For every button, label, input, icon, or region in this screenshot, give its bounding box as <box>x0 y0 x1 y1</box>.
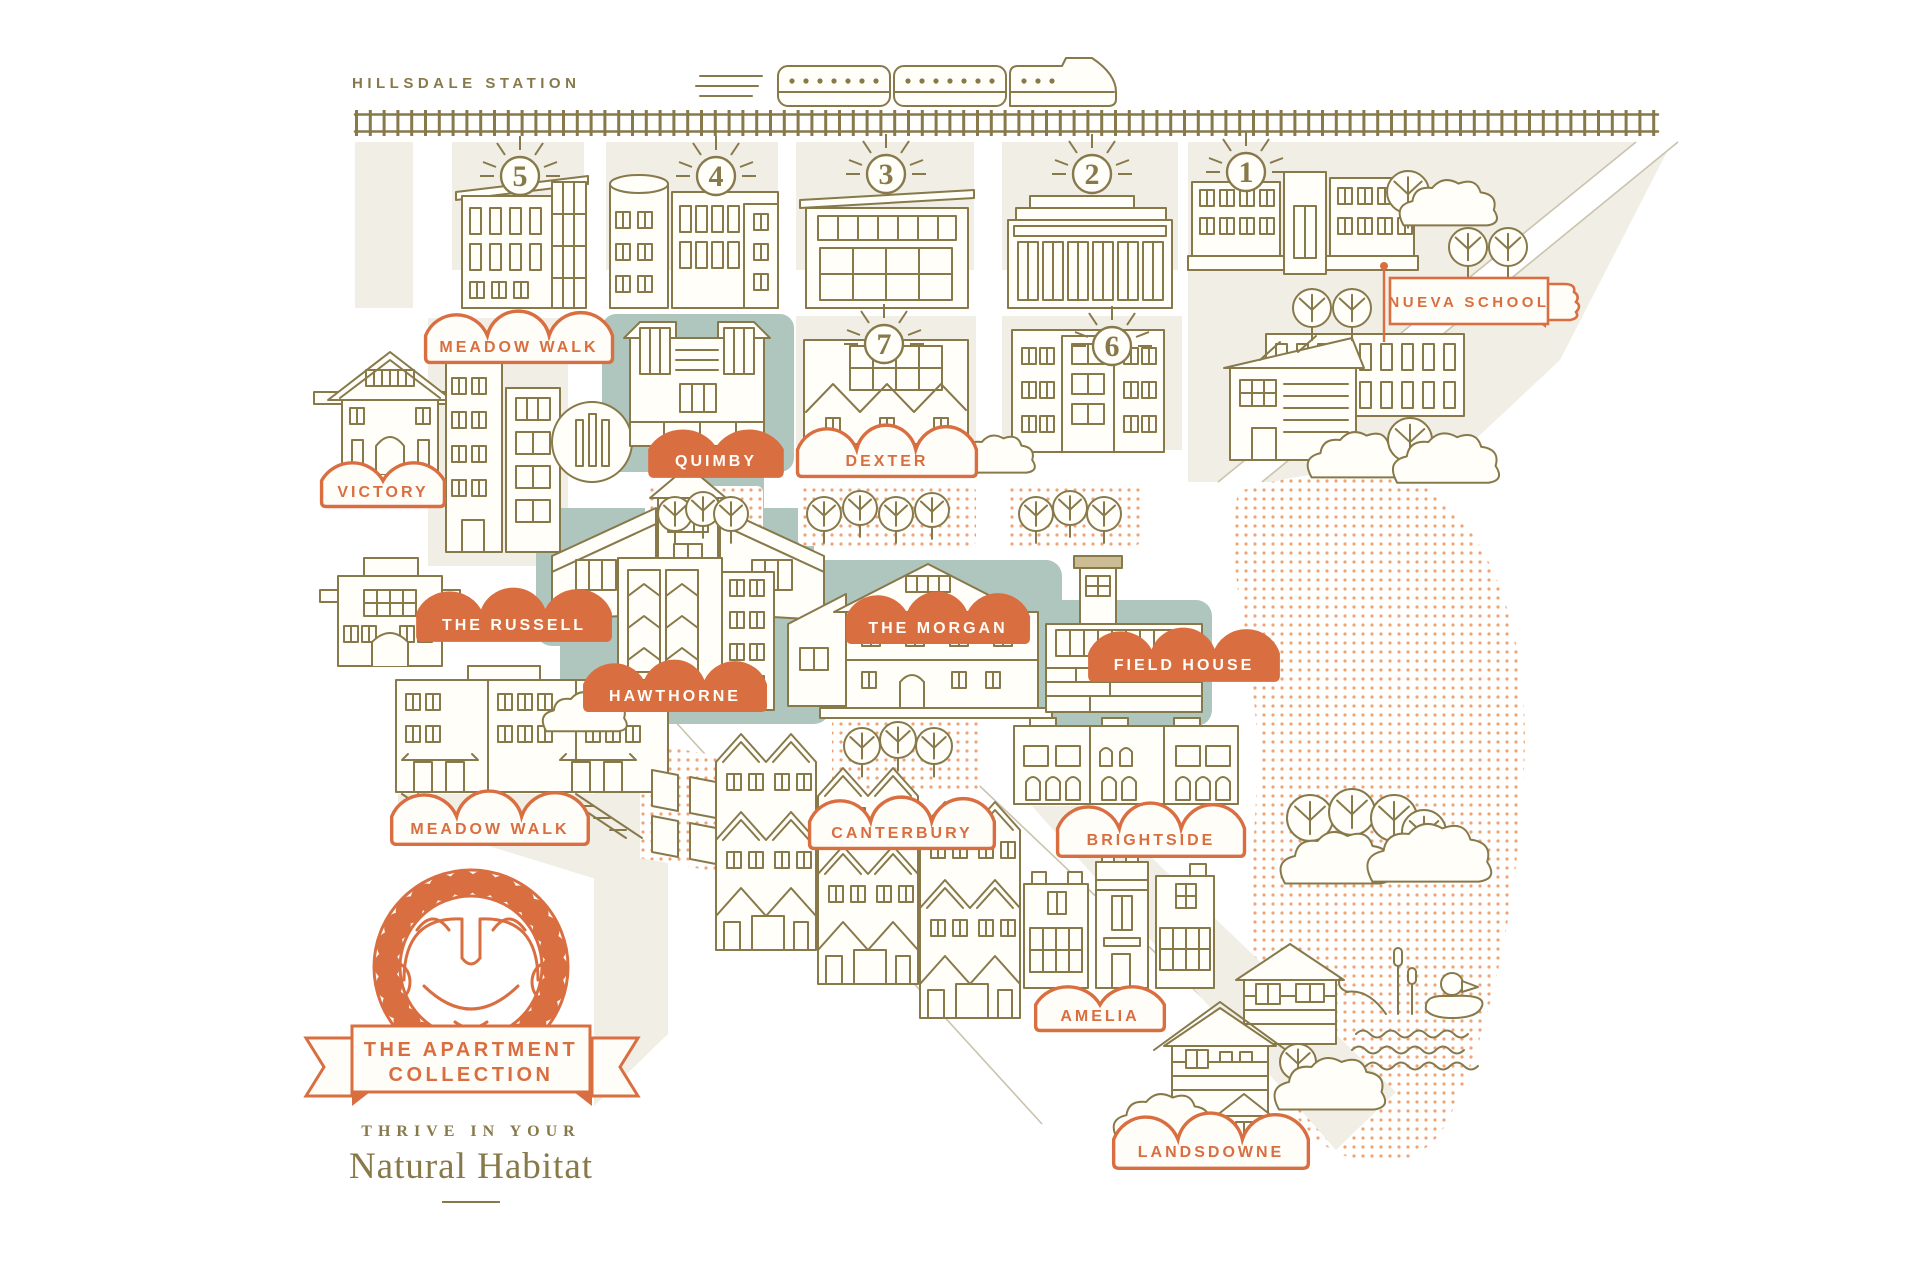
svg-text:QUIMBY: QUIMBY <box>675 453 757 470</box>
quimby-building <box>624 322 770 446</box>
svg-text:1: 1 <box>1239 156 1254 189</box>
svg-text:6: 6 <box>1105 330 1120 363</box>
label-hawthorne: HAWTHORNE <box>585 661 766 710</box>
logo-subtitle: Natural Habitat <box>349 1146 593 1187</box>
label-the-russell: THE RUSSELL <box>418 589 611 640</box>
svg-text:AMELIA: AMELIA <box>1060 1008 1139 1025</box>
label-meadow-walk-north: MEADOW WALK <box>426 311 613 362</box>
school-label: NUEVA SCHOOL <box>1388 294 1549 311</box>
label-canterbury: CANTERBURY <box>810 797 995 848</box>
svg-text:FIELD HOUSE: FIELD HOUSE <box>1114 657 1255 674</box>
svg-text:5: 5 <box>513 160 528 193</box>
svg-text:LANDSDOWNE: LANDSDOWNE <box>1138 1144 1284 1161</box>
label-brightside: BRIGHTSIDE <box>1058 803 1245 856</box>
svg-text:THE MORGAN: THE MORGAN <box>868 620 1007 637</box>
svg-text:4: 4 <box>709 160 724 193</box>
label-landsdowne: LANDSDOWNE <box>1114 1113 1309 1168</box>
label-the-morgan: THE MORGAN <box>848 593 1029 642</box>
building-6 <box>1012 330 1164 452</box>
apartment-collection-logo: THE APARTMENT COLLECTION THRIVE IN YOUR … <box>306 870 638 1202</box>
logo-tagline: THRIVE IN YOUR <box>361 1123 580 1140</box>
brightside-building <box>1014 718 1238 804</box>
railway <box>355 115 1658 132</box>
label-dexter: DEXTER <box>798 425 977 476</box>
logo-title-line1: THE APARTMENT <box>364 1039 578 1061</box>
svg-text:BRIGHTSIDE: BRIGHTSIDE <box>1087 832 1216 849</box>
svg-text:MEADOW WALK: MEADOW WALK <box>439 339 598 356</box>
building-1 <box>1188 172 1418 274</box>
label-field-house: FIELD HOUSE <box>1090 629 1279 680</box>
logo-ribbon: THE APARTMENT COLLECTION <box>306 1026 638 1106</box>
train-icon <box>696 58 1116 106</box>
apartment-collection-map-poster: HILLSDALE STATION <box>0 0 1920 1280</box>
amelia-buildings <box>1024 850 1214 988</box>
svg-text:DEXTER: DEXTER <box>846 453 929 470</box>
label-meadow-walk-south: MEADOW WALK <box>392 791 589 844</box>
svg-text:7: 7 <box>877 328 892 361</box>
svg-text:THE RUSSELL: THE RUSSELL <box>442 617 586 634</box>
logo-title-line2: COLLECTION <box>389 1064 554 1086</box>
stick-tree-circle <box>552 402 632 482</box>
station-label: HILLSDALE STATION <box>352 75 580 92</box>
neighborhood-map: HILLSDALE STATION <box>0 0 1920 1280</box>
building-4 <box>610 175 778 308</box>
svg-text:VICTORY: VICTORY <box>337 484 428 501</box>
building-2 <box>1008 196 1172 308</box>
svg-text:HAWTHORNE: HAWTHORNE <box>609 688 741 705</box>
svg-text:CANTERBURY: CANTERBURY <box>831 825 972 842</box>
svg-text:2: 2 <box>1085 158 1100 191</box>
svg-text:3: 3 <box>879 158 894 191</box>
label-amelia: AMELIA <box>1036 987 1165 1031</box>
building-3 <box>800 190 974 308</box>
svg-text:MEADOW WALK: MEADOW WALK <box>410 821 569 838</box>
